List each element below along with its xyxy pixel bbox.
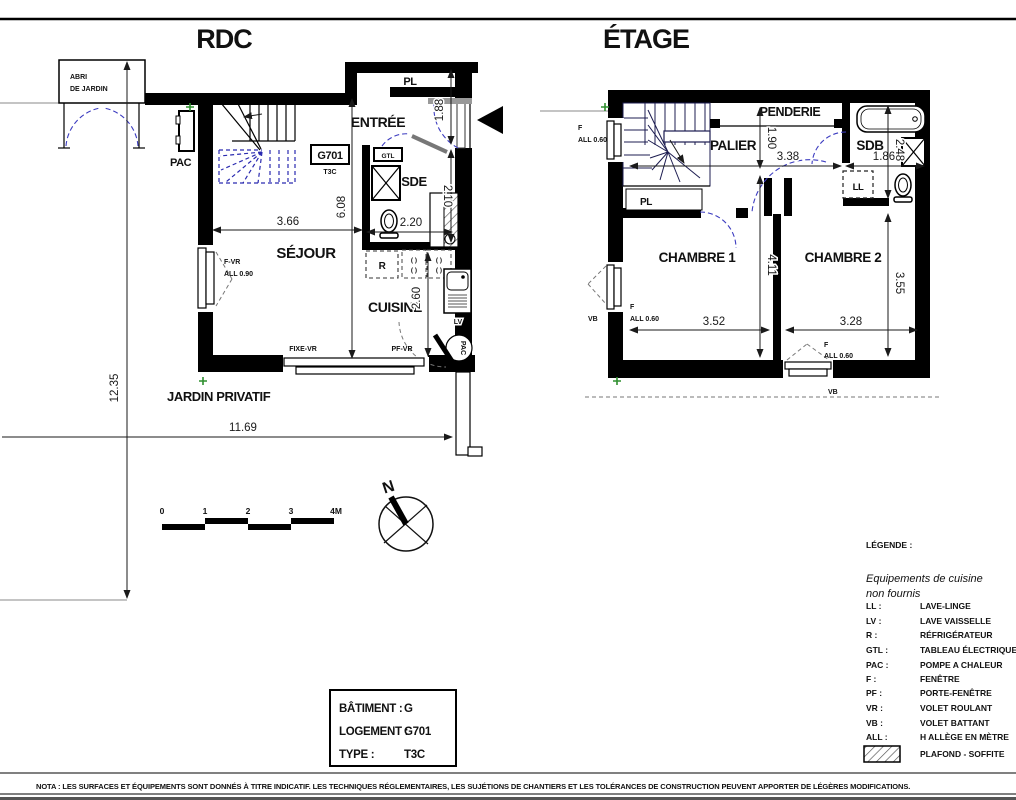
fridge-label: R: [379, 261, 387, 272]
scale-tick-4: 4M: [330, 506, 342, 516]
legend-label: TABLEAU ÉLECTRIQUE: [920, 645, 1016, 655]
shed-door-swing-arc: [104, 108, 138, 146]
legend-label: LAVE VAISSELLE: [920, 616, 991, 626]
floor-plan-sheet: RDC ABRI DE JARDIN PAC: [0, 0, 1016, 800]
legend-hatch-label: PLAFOND - SOFFITE: [920, 749, 1005, 759]
room-label-palier: PALIER: [710, 138, 757, 153]
garden-fence: [456, 372, 482, 456]
room-label-sde: SDE: [401, 174, 427, 189]
rdc-plan: RDC ABRI DE JARDIN PAC: [0, 24, 503, 600]
legend-abbr: PAC :: [866, 660, 889, 670]
chambre1-door-swing-arc: [700, 212, 736, 248]
unit-code-box: G701 T3C: [311, 145, 349, 176]
penderie: PENDERIE: [710, 105, 844, 128]
room-label-penderie: PENDERIE: [760, 105, 821, 119]
legend-abbr: R :: [866, 630, 878, 640]
shed-label-line2: DE JARDIN: [70, 86, 108, 93]
legend-label: POMPE A CHALEUR: [920, 660, 1003, 670]
scale-tick-0: 0: [160, 506, 165, 516]
info-batiment-label: BÂTIMENT :: [339, 702, 402, 715]
window-label-pfvr: PF-VR: [392, 346, 413, 353]
legend-label: VOLET BATTANT: [920, 718, 990, 728]
bay-window: FIXE-VR PF-VR: [283, 346, 429, 374]
nota-bar: NOTA : LES SURFACES ET ÉQUIPEMENTS SONT …: [36, 782, 910, 791]
legend-label: PORTE-FENÊTRE: [920, 687, 992, 698]
dim-entree-depth: 1.88: [434, 99, 446, 121]
etage-stairs-icon: [623, 103, 710, 186]
entrance-arrow-icon: [477, 106, 503, 134]
dim-palier-width: 3.38: [777, 151, 799, 163]
rdc-stairs-dashed: [219, 150, 295, 183]
dim-plot-width: 11.69: [229, 422, 257, 434]
window-label-all090: ALL 0.90: [224, 271, 253, 278]
legend-abbr: GTL :: [866, 645, 888, 655]
dim-main-depth: 6.08: [336, 196, 348, 218]
dim-sdb-depth: 2.48: [893, 139, 905, 161]
window-label-all060: ALL 0.60: [578, 137, 607, 144]
shower-icon: [372, 166, 400, 200]
dim-cuisine-depth: 2.60: [411, 287, 423, 309]
dim-palier-depth: 1.90: [765, 127, 777, 149]
dim-chambre1-width: 3.52: [703, 316, 725, 328]
legend-note-line1: Equipements de cuisine: [866, 573, 983, 585]
heat-pump-label: PAC: [170, 157, 192, 169]
dim-plot-depth: 12.35: [109, 374, 121, 403]
ll-label: LL: [853, 182, 864, 193]
pac-circle-label: PAC: [459, 341, 466, 355]
bathtub-icon: [857, 106, 925, 132]
etage-pl-label: PL: [640, 197, 652, 208]
room-label-chambre1: CHAMBRE 1: [659, 250, 737, 265]
info-type-value: T3C: [404, 749, 425, 761]
legend-title: LÉGENDE :: [866, 540, 912, 550]
window-label-f: F: [630, 304, 635, 311]
dim-sde-width: 2.20: [400, 217, 422, 229]
legend-abbr: LV :: [866, 616, 882, 626]
legend: LÉGENDE : Equipements de cuisine non fou…: [864, 540, 1016, 762]
floor-plan-drawing: RDC ABRI DE JARDIN PAC: [0, 0, 1016, 800]
info-batiment-value: G: [404, 703, 413, 715]
burner-mark: ( ): [436, 267, 442, 274]
soffit-hatch-swatch: [864, 746, 900, 762]
north-compass-icon: N: [379, 478, 433, 551]
room-label-chambre2: CHAMBRE 2: [805, 250, 882, 265]
legend-abbr: PF :: [866, 688, 882, 698]
legend-note-line2: non fournis: [866, 588, 921, 600]
toilet-icon: [894, 174, 912, 202]
washing-machine-box: LL: [843, 171, 873, 198]
legend-label: RÉFRIGÉRATEUR: [920, 630, 993, 640]
legend-abbr: VR :: [866, 703, 883, 713]
window-label-f: F: [824, 342, 829, 349]
legend-abbr: ALL :: [866, 732, 888, 742]
legend-label: H ALLÈGE EN MÈTRE: [920, 732, 1009, 742]
burner-mark: ( ): [411, 257, 417, 264]
etage-title: ÉTAGE: [603, 23, 689, 54]
window-label-all060: ALL 0.60: [824, 353, 853, 360]
toilet-icon: [380, 210, 398, 238]
rdc-pl-label: PL: [403, 76, 417, 88]
legend-label: FENÊTRE: [920, 673, 960, 684]
room-label-sejour: SÉJOUR: [276, 245, 336, 262]
room-label-entree: ENTRÉE: [351, 114, 405, 130]
legend-abbr: VB :: [866, 718, 883, 728]
legend-label: LAVE-LINGE: [920, 601, 971, 611]
etage-plan: ÉTAGE: [540, 23, 940, 397]
burner-mark: ( ): [411, 267, 417, 274]
room-label-jardin: JARDIN PRIVATIF: [167, 389, 271, 404]
window-label-fvr: F-VR: [224, 259, 240, 266]
info-type-label: TYPE :: [339, 749, 374, 761]
garden-shed: ABRI DE JARDIN: [58, 60, 145, 148]
info-logement-label: LOGEMENT :: [339, 726, 408, 738]
dim-chambre2-depth: 3.55: [893, 272, 905, 294]
scale-tick-3: 3: [289, 506, 294, 516]
gtl-label: GTL: [382, 153, 395, 160]
north-label: N: [380, 478, 396, 498]
rdc-title: RDC: [196, 24, 252, 54]
shutter-label-vb: VB: [588, 316, 598, 323]
window-label-f: F: [578, 125, 583, 132]
window-label-fixevr: FIXE-VR: [289, 346, 317, 353]
dishwasher-label: LV: [454, 319, 463, 326]
scale-tick-2: 2: [246, 506, 251, 516]
legend-abbr: LL :: [866, 601, 882, 611]
dim-sdb-width: 1.86: [873, 151, 895, 163]
unit-code: G701: [317, 150, 343, 162]
dim-chambre-depth: 4.11: [765, 254, 777, 276]
legend-abbr: F :: [866, 674, 877, 684]
electrical-panel-icon: GTL: [374, 148, 402, 161]
shed-label-line1: ABRI: [70, 74, 87, 81]
kitchen-equipment: R ( ) ( ) ( ) ( ): [366, 250, 451, 278]
burner-mark: ( ): [436, 257, 442, 264]
dim-closet-depth: 2.10: [441, 185, 453, 207]
sheet-frame: [0, 19, 1016, 799]
info-box: BÂTIMENT : G LOGEMENT : G701 TYPE : T3C: [330, 690, 456, 766]
scale-bar: 0 1 2 3 4M: [160, 506, 342, 530]
dim-sejour-width: 3.66: [277, 216, 299, 228]
etage-closet-pl: PL: [626, 189, 702, 210]
shed-door-swing-arc: [66, 108, 100, 146]
chambre1-window: F ALL 0.60 VB: [588, 262, 659, 323]
legend-label: VOLET ROULANT: [920, 703, 993, 713]
stair-window: F ALL 0.60: [578, 118, 624, 162]
info-logement-value: G701: [404, 726, 432, 738]
dim-chambre2-width: 3.28: [840, 316, 862, 328]
unit-type: T3C: [323, 169, 336, 176]
shutter-label-vb: VB: [828, 389, 838, 396]
window-label-all060: ALL 0.60: [630, 316, 659, 323]
heat-pump-unit-icon: PAC: [170, 111, 194, 169]
nota-text: NOTA : LES SURFACES ET ÉQUIPEMENTS SONT …: [36, 782, 910, 791]
rdc-stairs-icon: [216, 95, 295, 183]
sdb-door-swing-arc: [812, 132, 846, 164]
scale-tick-1: 1: [203, 506, 208, 516]
sejour-window: F-VR ALL 0.90: [196, 245, 253, 312]
